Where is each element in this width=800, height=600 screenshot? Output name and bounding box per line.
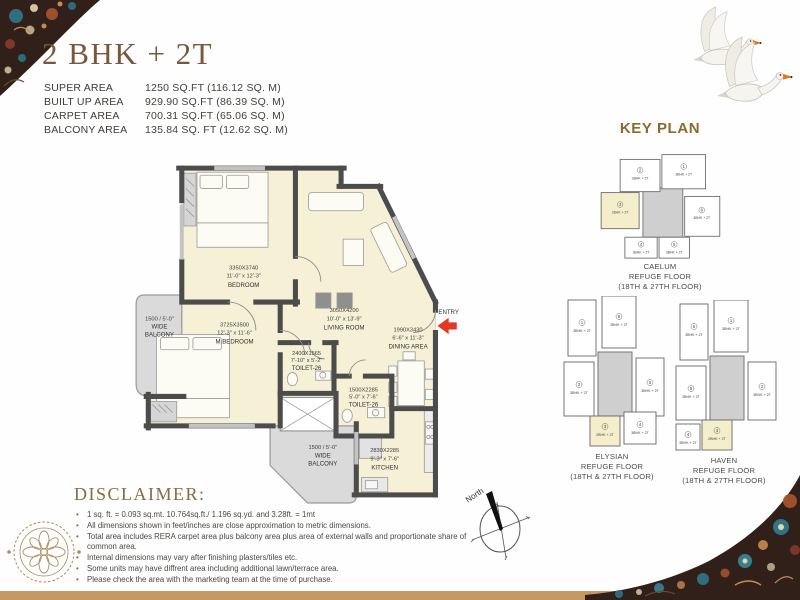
floor-type: REFUGE FLOOR xyxy=(597,272,723,282)
floor-plan-drawing: 3350X3740 11'-0" x 12'-3" BEDROOM 3050X4… xyxy=(128,160,473,505)
svg-text:2830X2285: 2830X2285 xyxy=(370,448,399,454)
svg-text:WIDE: WIDE xyxy=(152,323,168,330)
svg-text:3BHK + 2T: 3BHK + 2T xyxy=(675,173,692,177)
room-label-living: 3050X4200 10'-0" x 13'-9" LIVING ROOM xyxy=(324,308,365,331)
svg-text:3BHK + 2T: 3BHK + 2T xyxy=(573,329,591,333)
keyplan-cluster-caelum: 2 3BHK + 2T 1 3BHK + 2T 3 2BHK + 2T 6 3B… xyxy=(597,148,723,260)
svg-text:3725X3500: 3725X3500 xyxy=(220,322,249,328)
svg-text:2BHK + 2T: 2BHK + 2T xyxy=(708,437,726,441)
room-label-toilet-b: 1500X2285 5'-0" x 7'-6" TOILET-26 xyxy=(349,387,379,408)
tower-name: ELYSIAN xyxy=(556,452,668,462)
area-label: SUPER AREA xyxy=(44,82,145,96)
svg-text:7'-10" x 5'-2": 7'-10" x 5'-2" xyxy=(291,358,323,364)
disclaimer-section: DISCLAIMER: 1 sq. ft. = 0.093 sq.mt. 10.… xyxy=(74,484,494,586)
svg-text:2BHK + 2T: 2BHK + 2T xyxy=(596,433,614,437)
svg-text:3BHK + 2T: 3BHK + 2T xyxy=(631,431,649,435)
svg-text:5'-0" x 7'-6": 5'-0" x 7'-6" xyxy=(349,394,378,400)
svg-text:3BHK + 2T: 3BHK + 2T xyxy=(570,391,588,395)
svg-text:DINING AREA: DINING AREA xyxy=(388,344,428,351)
svg-text:2BHK + 2T: 2BHK + 2T xyxy=(612,210,629,214)
svg-text:3BHK + 2T: 3BHK + 2T xyxy=(641,389,659,393)
svg-text:3BHK + 2T: 3BHK + 2T xyxy=(693,216,710,220)
svg-text:1500 / 5'-0": 1500 / 5'-0" xyxy=(309,445,338,451)
disclaimer-item: All dimensions shown in feet/inches are … xyxy=(76,521,494,532)
svg-text:TOILET-26: TOILET-26 xyxy=(349,402,379,409)
svg-text:9'-3" x 7'-6": 9'-3" x 7'-6" xyxy=(370,456,399,462)
medallion-ornament xyxy=(6,514,82,590)
keyplan-cluster-haven: 6 3BHK + 2T 1 3BHK + 2T 5 3BHK + 2T 2 3B… xyxy=(668,300,780,452)
ornate-corner-bottom-right xyxy=(585,475,800,600)
room-label-toilet-a: 2400X1565 7'-10" x 5'-2" TOILET-26 xyxy=(291,351,323,372)
caption-caelum: CAELUM REFUGE FLOOR (18TH & 27TH FLOOR) xyxy=(597,262,723,292)
svg-text:3BHK + 2T: 3BHK + 2T xyxy=(753,393,771,397)
area-label: CARPET AREA xyxy=(44,110,145,124)
svg-text:3BHK + 2T: 3BHK + 2T xyxy=(722,327,740,331)
keyplan-cluster-elysian: 1 3BHK + 2T 6 3BHK + 2T 2 3BHK + 2T 5 3B… xyxy=(556,296,668,448)
svg-text:2400X1565: 2400X1565 xyxy=(292,351,321,357)
svg-text:10'-0" x 13'-9": 10'-0" x 13'-9" xyxy=(327,316,362,322)
room-label-bedroom: 3350X3740 11'-0" x 12'-3" BEDROOM xyxy=(226,266,260,289)
entry-arrow-icon xyxy=(437,318,456,334)
svg-text:3BHK + 2T: 3BHK + 2T xyxy=(633,250,650,254)
floor-plan-brochure: 2 BHK + 2T SUPER AREA 1250 SQ.FT (116.12… xyxy=(0,0,800,600)
svg-text:1990X3430: 1990X3430 xyxy=(394,327,423,333)
svg-text:3BHK + 2T: 3BHK + 2T xyxy=(685,333,703,337)
disclaimer-title: DISCLAIMER: xyxy=(74,484,494,505)
room-label-dining: 1990X3430 6'-6" x 11'-3" DINING AREA xyxy=(388,327,428,350)
svg-text:3BHK + 2T: 3BHK + 2T xyxy=(682,395,700,399)
svg-text:3350X3740: 3350X3740 xyxy=(229,266,258,272)
svg-text:TOILET-26: TOILET-26 xyxy=(292,365,322,372)
svg-text:LIVING ROOM: LIVING ROOM xyxy=(324,324,365,331)
svg-text:1500X2285: 1500X2285 xyxy=(349,387,378,393)
area-value: 135.84 SQ. FT (12.62 SQ. M) xyxy=(145,124,288,138)
svg-text:3BHK + 2T: 3BHK + 2T xyxy=(632,176,649,180)
disclaimer-item: Total area includes RERA carpet area plu… xyxy=(76,532,494,554)
svg-text:1500 / 5'-0": 1500 / 5'-0" xyxy=(145,316,174,322)
area-summary: SUPER AREA 1250 SQ.FT (116.12 SQ. M) BUI… xyxy=(44,82,288,138)
room-label-kitchen: 2830X2285 9'-3" x 7'-6" KITCHEN xyxy=(370,448,399,471)
svg-text:3050X4200: 3050X4200 xyxy=(330,308,359,314)
svg-text:KITCHEN: KITCHEN xyxy=(371,464,398,471)
area-row-carpet: CARPET AREA 700.31 SQ.FT (65.06 SQ. M) xyxy=(44,110,288,124)
page-title: 2 BHK + 2T xyxy=(42,36,213,72)
floor-numbers: (18TH & 27TH FLOOR) xyxy=(597,282,723,292)
svg-text:6'-6" x 11'-3": 6'-6" x 11'-3" xyxy=(392,336,423,342)
svg-text:3BHK + 2T: 3BHK + 2T xyxy=(679,441,697,445)
floor-type: REFUGE FLOOR xyxy=(556,462,668,472)
area-value: 929.90 SQ.FT (86.39 SQ. M) xyxy=(145,96,285,110)
area-row-super: SUPER AREA 1250 SQ.FT (116.12 SQ. M) xyxy=(44,82,288,96)
disclaimer-item: Some units may have diffrent area includ… xyxy=(76,564,494,575)
swans-illustration xyxy=(676,2,796,107)
area-row-builtup: BUILT UP AREA 929.90 SQ.FT (86.39 SQ. M) xyxy=(44,96,288,110)
svg-text:BEDROOM: BEDROOM xyxy=(228,282,259,289)
area-value: 700.31 SQ.FT (65.06 SQ. M) xyxy=(145,110,285,124)
svg-text:BALCONY: BALCONY xyxy=(308,460,337,467)
tower-name: CAELUM xyxy=(597,262,723,272)
entry-label: ENTRY xyxy=(438,309,459,316)
svg-text:11'-0" x 12'-3": 11'-0" x 12'-3" xyxy=(226,274,260,280)
area-row-balcony: BALCONY AREA 135.84 SQ. FT (12.62 SQ. M) xyxy=(44,124,288,138)
svg-text:BALCONY: BALCONY xyxy=(145,332,174,339)
svg-text:3BHK + 2T: 3BHK + 2T xyxy=(666,250,683,254)
disclaimer-item: 1 sq. ft. = 0.093 sq.mt. 10.764sq.ft./ 1… xyxy=(76,510,494,521)
tower-name: HAVEN xyxy=(668,456,780,466)
service-shaft xyxy=(280,397,335,430)
keyplan-title: KEY PLAN xyxy=(595,120,725,137)
room-label-mbedroom: 3725X3500 12'-3" x 11'-6" M.BEDROOM xyxy=(215,322,253,345)
area-value: 1250 SQ.FT (116.12 SQ. M) xyxy=(145,82,281,96)
svg-text:WIDE: WIDE xyxy=(315,452,331,459)
disclaimer-item: Please check the area with the marketing… xyxy=(76,575,494,586)
disclaimer-list: 1 sq. ft. = 0.093 sq.mt. 10.764sq.ft./ 1… xyxy=(76,510,494,586)
svg-text:3BHK + 2T: 3BHK + 2T xyxy=(610,323,628,327)
area-label: BUILT UP AREA xyxy=(44,96,145,110)
svg-text:M.BEDROOM: M.BEDROOM xyxy=(215,339,253,346)
svg-text:12'-3" x 11'-6": 12'-3" x 11'-6" xyxy=(217,331,251,337)
disclaimer-item: Internal dimensions may vary after finis… xyxy=(76,553,494,564)
area-label: BALCONY AREA xyxy=(44,124,145,138)
